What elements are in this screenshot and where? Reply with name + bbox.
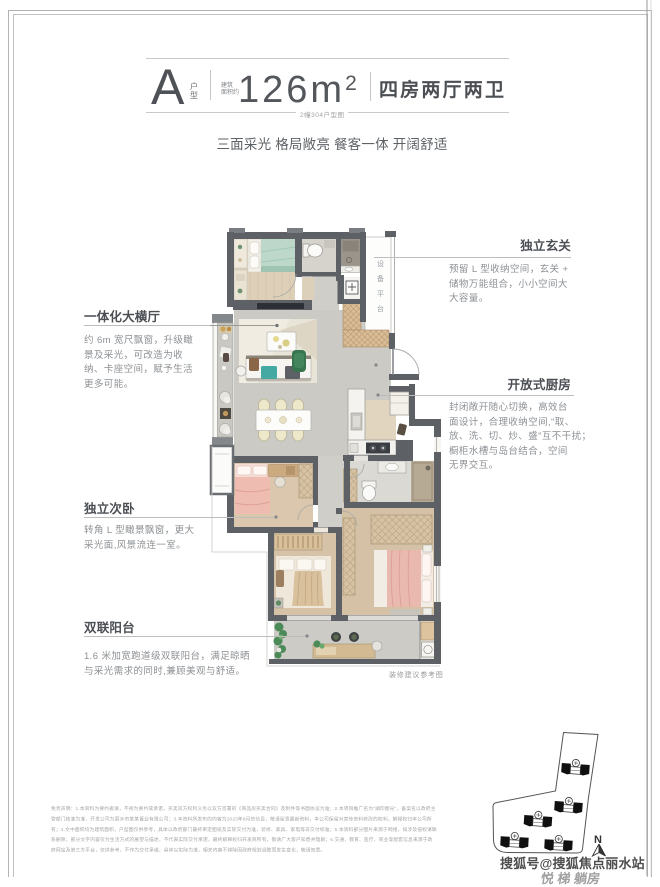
svg-text:N: N bbox=[594, 834, 602, 846]
